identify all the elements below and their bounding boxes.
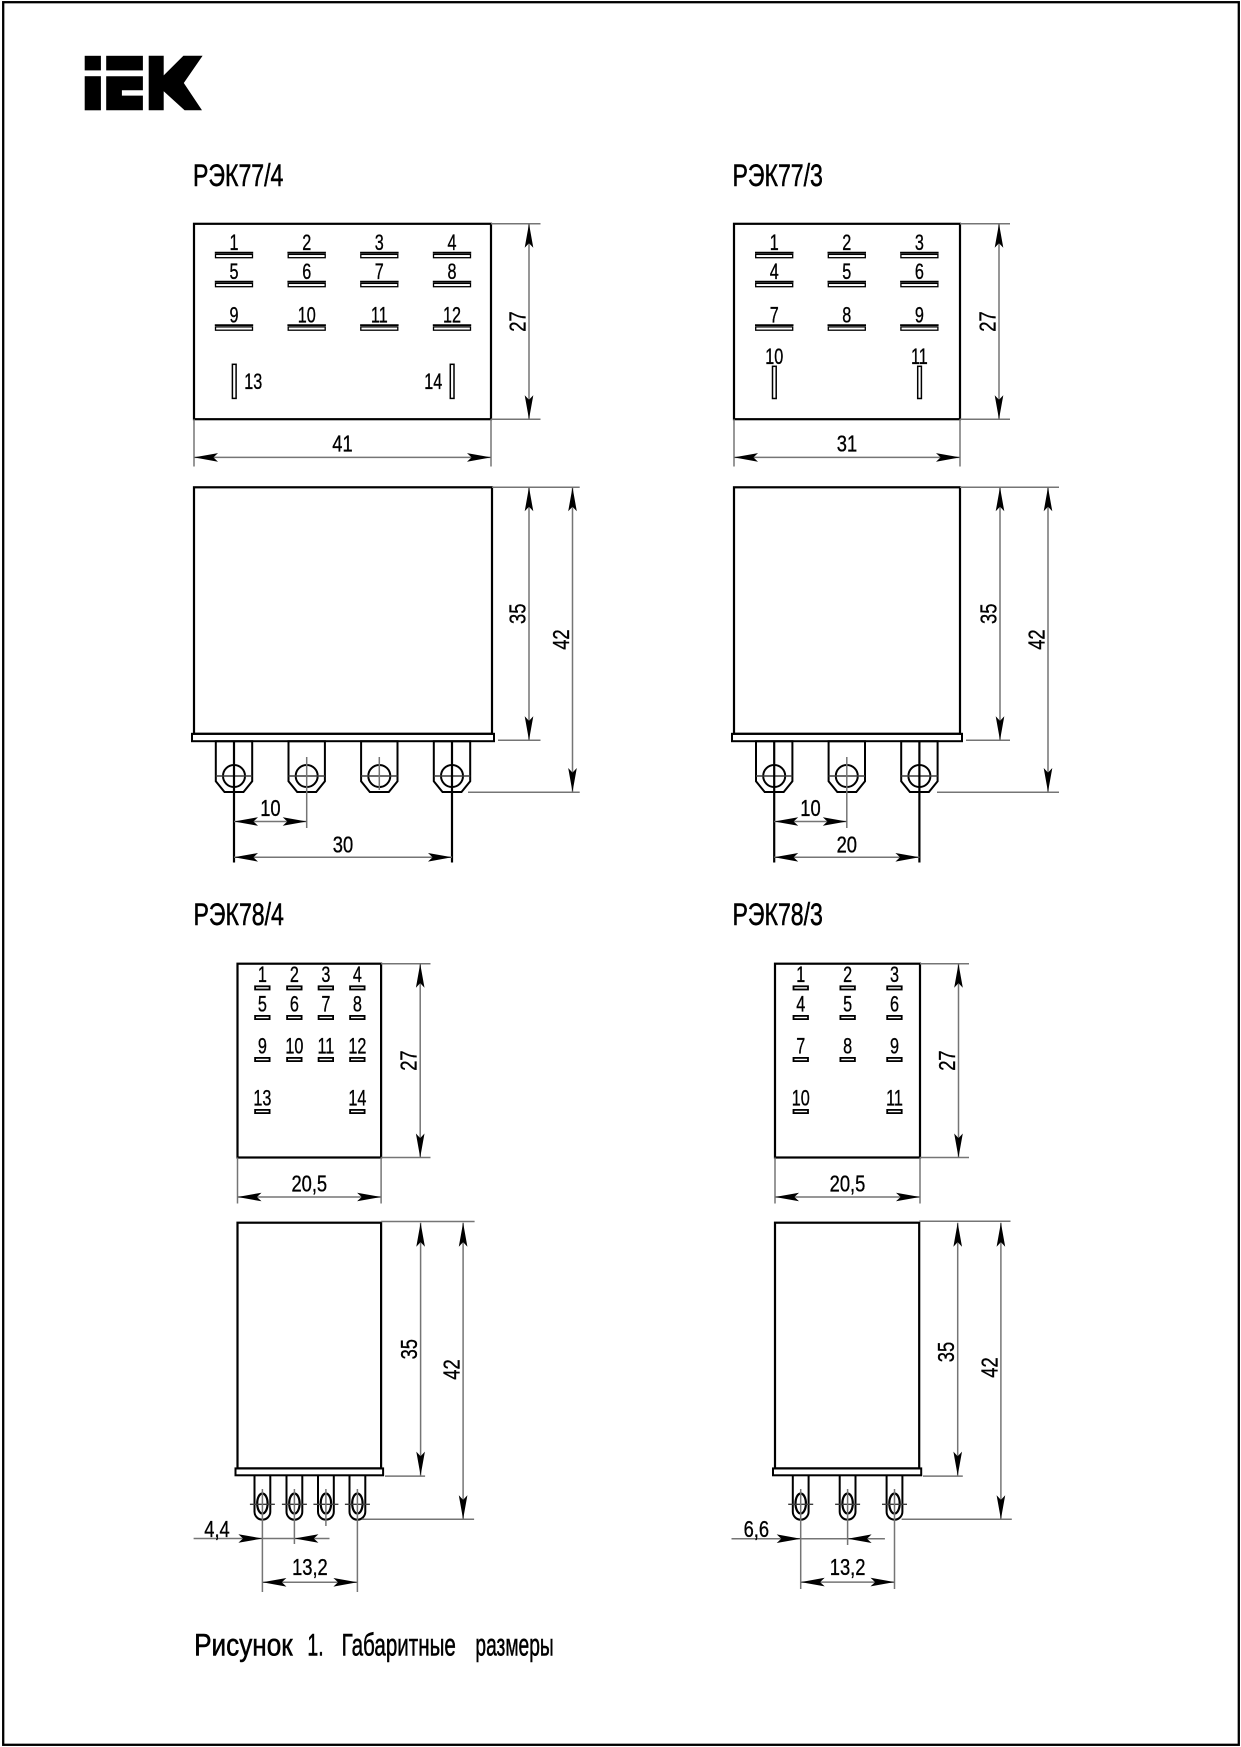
svg-text:7: 7 [796, 1034, 805, 1059]
svg-text:1.: 1. [307, 1627, 323, 1663]
svg-text:42: 42 [440, 1359, 466, 1379]
svg-text:7: 7 [321, 992, 330, 1017]
svg-text:14: 14 [424, 369, 442, 394]
svg-text:РЭК77/4: РЭК77/4 [193, 157, 283, 193]
svg-text:4: 4 [353, 962, 362, 987]
svg-text:6,6: 6,6 [744, 1517, 769, 1543]
svg-text:14: 14 [348, 1086, 366, 1111]
svg-text:27: 27 [505, 311, 531, 331]
svg-text:27: 27 [935, 1050, 961, 1070]
svg-text:30: 30 [333, 832, 353, 858]
svg-text:20,5: 20,5 [291, 1171, 327, 1197]
svg-text:5: 5 [843, 992, 852, 1017]
svg-text:13,2: 13,2 [292, 1555, 328, 1581]
svg-text:9: 9 [890, 1034, 899, 1059]
svg-text:13,2: 13,2 [830, 1555, 866, 1581]
svg-text:1: 1 [258, 962, 267, 987]
svg-text:31: 31 [837, 432, 857, 458]
svg-text:27: 27 [975, 311, 1001, 331]
svg-text:10: 10 [285, 1034, 303, 1059]
svg-text:3: 3 [321, 962, 330, 987]
svg-text:42: 42 [549, 629, 575, 649]
svg-text:13: 13 [244, 369, 262, 394]
svg-text:12: 12 [348, 1034, 366, 1059]
svg-text:10: 10 [792, 1086, 810, 1111]
svg-text:2: 2 [843, 962, 852, 987]
svg-text:35: 35 [976, 604, 1002, 624]
svg-text:35: 35 [934, 1342, 960, 1362]
svg-text:35: 35 [505, 604, 531, 624]
svg-text:РЭК77/3: РЭК77/3 [733, 157, 823, 193]
svg-text:4,4: 4,4 [204, 1517, 230, 1543]
svg-text:42: 42 [1024, 629, 1050, 649]
svg-text:27: 27 [397, 1050, 423, 1070]
svg-text:Габаритные: Габаритные [342, 1627, 456, 1663]
svg-text:4: 4 [796, 992, 805, 1017]
svg-text:11: 11 [886, 1086, 903, 1111]
svg-text:10: 10 [800, 796, 820, 822]
svg-text:35: 35 [397, 1339, 423, 1359]
svg-text:6: 6 [890, 992, 899, 1017]
svg-text:размеры: размеры [475, 1627, 553, 1663]
svg-text:9: 9 [258, 1034, 267, 1059]
svg-text:3: 3 [890, 962, 899, 987]
svg-text:2: 2 [290, 962, 299, 987]
svg-text:8: 8 [843, 1034, 852, 1059]
svg-text:11: 11 [317, 1034, 334, 1059]
svg-text:41: 41 [332, 432, 352, 458]
svg-text:20,5: 20,5 [830, 1171, 866, 1197]
svg-text:20: 20 [837, 832, 857, 858]
svg-text:10: 10 [260, 796, 280, 822]
svg-text:13: 13 [253, 1086, 271, 1111]
svg-text:РЭК78/3: РЭК78/3 [733, 896, 823, 932]
svg-text:6: 6 [290, 992, 299, 1017]
svg-text:1: 1 [796, 962, 805, 987]
svg-text:Рисунок: Рисунок [194, 1627, 293, 1663]
svg-text:РЭК78/4: РЭК78/4 [194, 896, 284, 932]
svg-text:8: 8 [353, 992, 362, 1017]
svg-text:42: 42 [977, 1357, 1003, 1377]
svg-text:5: 5 [258, 992, 267, 1017]
